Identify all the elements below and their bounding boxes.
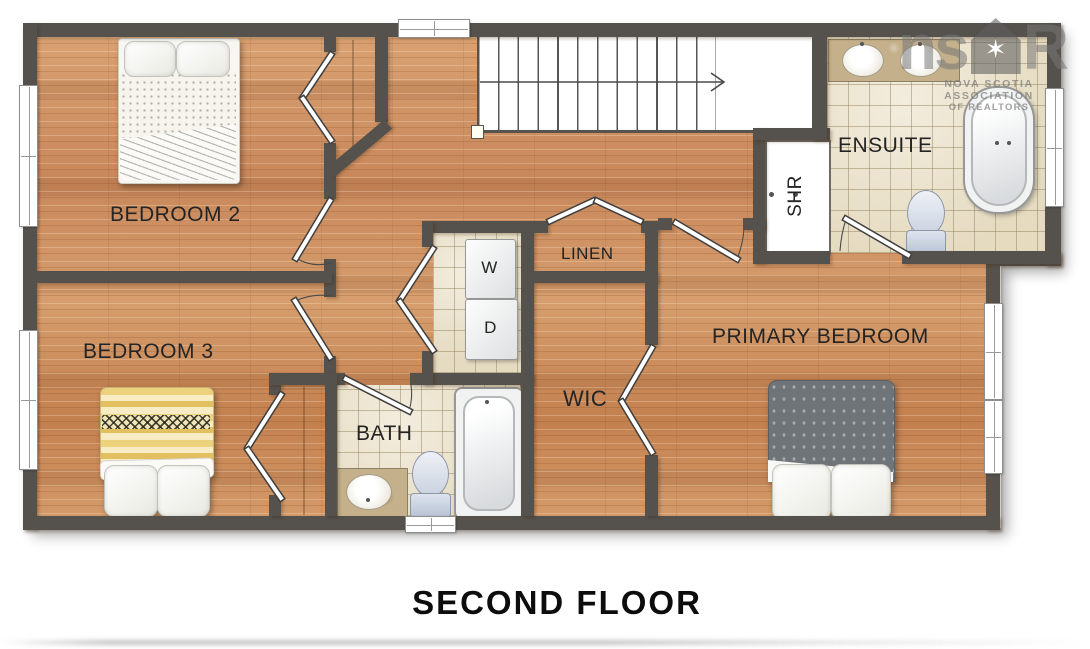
wall-segment [23, 516, 1000, 530]
pillow [176, 41, 230, 77]
bath-toilet-tank [410, 493, 451, 518]
wall-segment [269, 495, 281, 516]
stairwell-floor [478, 37, 812, 133]
pillow [831, 464, 891, 520]
faucet-icon [485, 400, 489, 404]
wall-segment [658, 218, 672, 230]
wall-segment [375, 37, 388, 122]
bath-sink [346, 474, 392, 510]
room-label-primary-bedroom: PRIMARY BEDROOM [712, 325, 929, 349]
floor-plan-image: BEDROOM 2 BEDROOM 3 PRIMARY BEDROOM ENSU… [0, 0, 1090, 649]
wall-segment [422, 351, 433, 385]
window [19, 330, 38, 470]
bedroom2-closet-shelf-line [352, 40, 354, 148]
wall-segment [533, 271, 658, 283]
wall-segment [645, 221, 658, 283]
pillow [772, 464, 831, 520]
bath-toilet [412, 451, 449, 497]
wall-segment [753, 251, 830, 264]
wall-segment [902, 251, 1061, 264]
bottom-artifact-line [0, 640, 1090, 645]
room-label-bedroom3: BEDROOM 3 [83, 340, 214, 364]
wall-segment [37, 271, 332, 283]
bedroom3-bed [100, 387, 212, 517]
pillow [157, 465, 210, 517]
wall-segment [645, 283, 658, 345]
room-label-linen: LINEN [561, 244, 614, 264]
bath-bathtub [454, 387, 524, 520]
room-label-ensuite: ENSUITE [838, 134, 933, 158]
wall-segment [521, 221, 534, 516]
window [405, 516, 456, 533]
bedroom3-closet-shelf-line [303, 387, 305, 515]
wall-segment [325, 373, 337, 516]
faucet-icon [918, 42, 922, 46]
window [1045, 88, 1064, 207]
bathtub-basin [971, 94, 1027, 206]
pillow [124, 41, 176, 77]
stair-newel-post [471, 125, 484, 139]
wall-segment [645, 455, 658, 516]
faucet-icon [995, 141, 999, 145]
washer-label: W [465, 258, 514, 278]
dryer-label: D [465, 318, 516, 338]
ensuite-sink [842, 44, 884, 77]
stair-side-line [477, 37, 479, 132]
faucet-icon [1007, 141, 1011, 145]
wall-segment [324, 37, 336, 52]
faucet-icon [366, 498, 370, 502]
window [984, 400, 1003, 474]
faucet-icon [860, 42, 864, 46]
shower-door-handle-icon [769, 192, 774, 197]
window [398, 19, 470, 38]
room-label-bath: BATH [356, 422, 412, 446]
room-label-wic: WIC [563, 386, 607, 412]
bedroom2-bed [118, 38, 238, 182]
pillow [104, 465, 158, 517]
wall-segment [533, 221, 548, 233]
window [984, 303, 1003, 400]
wall-segment [23, 23, 1061, 37]
wall-segment [1047, 23, 1061, 88]
stair-treads [478, 37, 716, 133]
ensuite-sink [900, 44, 942, 77]
wall-segment [753, 128, 765, 263]
bed-chevron-band [102, 415, 210, 429]
wall-segment [812, 37, 827, 140]
page-title: SECOND FLOOR [412, 584, 702, 622]
window [19, 85, 38, 227]
room-label-shower: SHR [785, 169, 807, 223]
ensuite-bathtub [963, 86, 1035, 214]
bathtub-basin [463, 396, 515, 511]
wall-segment [422, 221, 533, 233]
primary-bed [768, 380, 893, 520]
wall-segment [422, 221, 433, 247]
room-label-bedroom2: BEDROOM 2 [110, 203, 241, 227]
